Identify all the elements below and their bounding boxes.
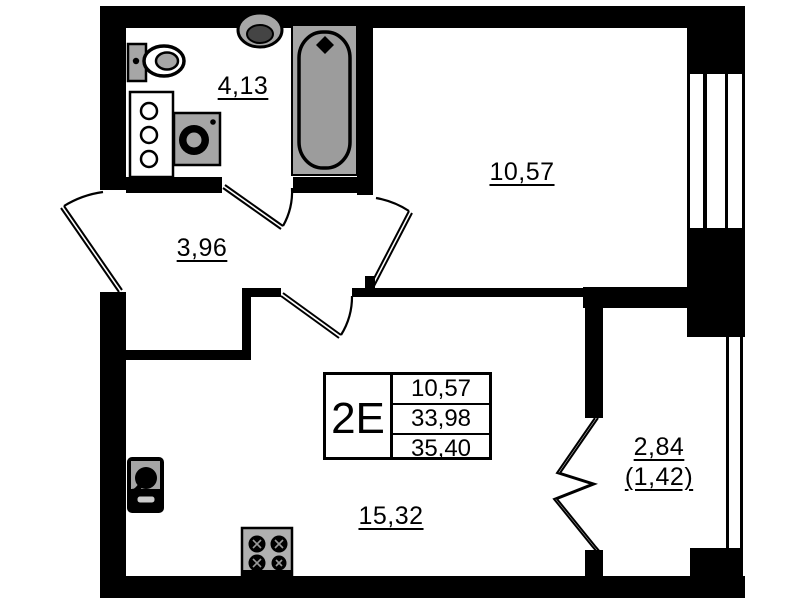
- unit-area-values: 10,57 33,98 35,40: [393, 375, 489, 457]
- unit-area-row-overall: 35,40: [393, 435, 489, 463]
- balcony-area-label: 2,84: [613, 433, 705, 462]
- living-kitchen-area-label: 15,32: [346, 502, 436, 531]
- wall-balcony-left-stub: [585, 550, 603, 576]
- unit-area-row-living: 10,57: [393, 375, 489, 405]
- entry-door: [61, 192, 122, 292]
- wall-bottom: [100, 576, 745, 598]
- wall-bathroom-corner-step: [357, 177, 373, 195]
- wall-top: [100, 6, 745, 28]
- wall-mid-vertical-stub: [242, 288, 251, 360]
- balcony-area-coeff-label: (1,42): [608, 463, 710, 492]
- balcony-door: [554, 418, 601, 553]
- wall-balcony-left: [585, 293, 603, 418]
- window-icon: [726, 337, 729, 548]
- wall-mid-horizontal-right: [352, 288, 583, 297]
- window-pane: [728, 74, 742, 228]
- bathroom-door: [223, 185, 292, 229]
- unit-area-row-total: 33,98: [393, 405, 489, 435]
- window-bedroom: [687, 74, 745, 228]
- wall-bathroom-right: [357, 21, 373, 177]
- window-icon: [740, 337, 743, 548]
- window-pane: [707, 74, 725, 228]
- washing-machine-icon: [174, 113, 220, 165]
- wall-left-upper: [100, 6, 126, 190]
- wall-left-lower: [100, 292, 126, 598]
- living-room-door: [281, 293, 352, 338]
- toilet-icon: [128, 44, 184, 81]
- door-swing-icon: [370, 211, 409, 286]
- kitchen-sink-icon: [127, 457, 164, 513]
- floor-plan-canvas: 4,13 3,96 10,57 15,32 2,84 (1,42) 2E 10,…: [0, 0, 799, 600]
- door-swing-icon: [64, 206, 122, 290]
- wall-right-top: [687, 6, 745, 74]
- bathroom-area-label: 4,13: [203, 72, 283, 101]
- unit-type-label: 2E: [326, 375, 393, 457]
- window-pane: [690, 74, 703, 228]
- vanity-cabinet-icon: [130, 92, 173, 177]
- wall-right-mid-pillar: [687, 228, 745, 337]
- wall-hallway-bottom: [126, 350, 243, 360]
- bathtub-icon: [292, 25, 357, 175]
- wall-bathroom-bottom-left: [126, 177, 222, 193]
- bedroom-door: [370, 198, 412, 288]
- washbasin-icon: [238, 13, 282, 47]
- door-swing-icon: [283, 293, 341, 335]
- wall-mid-horizontal-left: [251, 288, 281, 297]
- hallway-area-label: 3,96: [162, 234, 242, 263]
- wall-bathroom-bottom-right: [293, 177, 357, 193]
- stove-icon: [242, 528, 292, 576]
- door-swing-icon: [225, 185, 283, 226]
- wall-bottom-right-block: [690, 548, 743, 598]
- unit-info-table: 2E 10,57 33,98 35,40: [323, 372, 492, 460]
- bedroom-area-label: 10,57: [477, 158, 567, 187]
- window-balcony-glazing: [726, 337, 743, 548]
